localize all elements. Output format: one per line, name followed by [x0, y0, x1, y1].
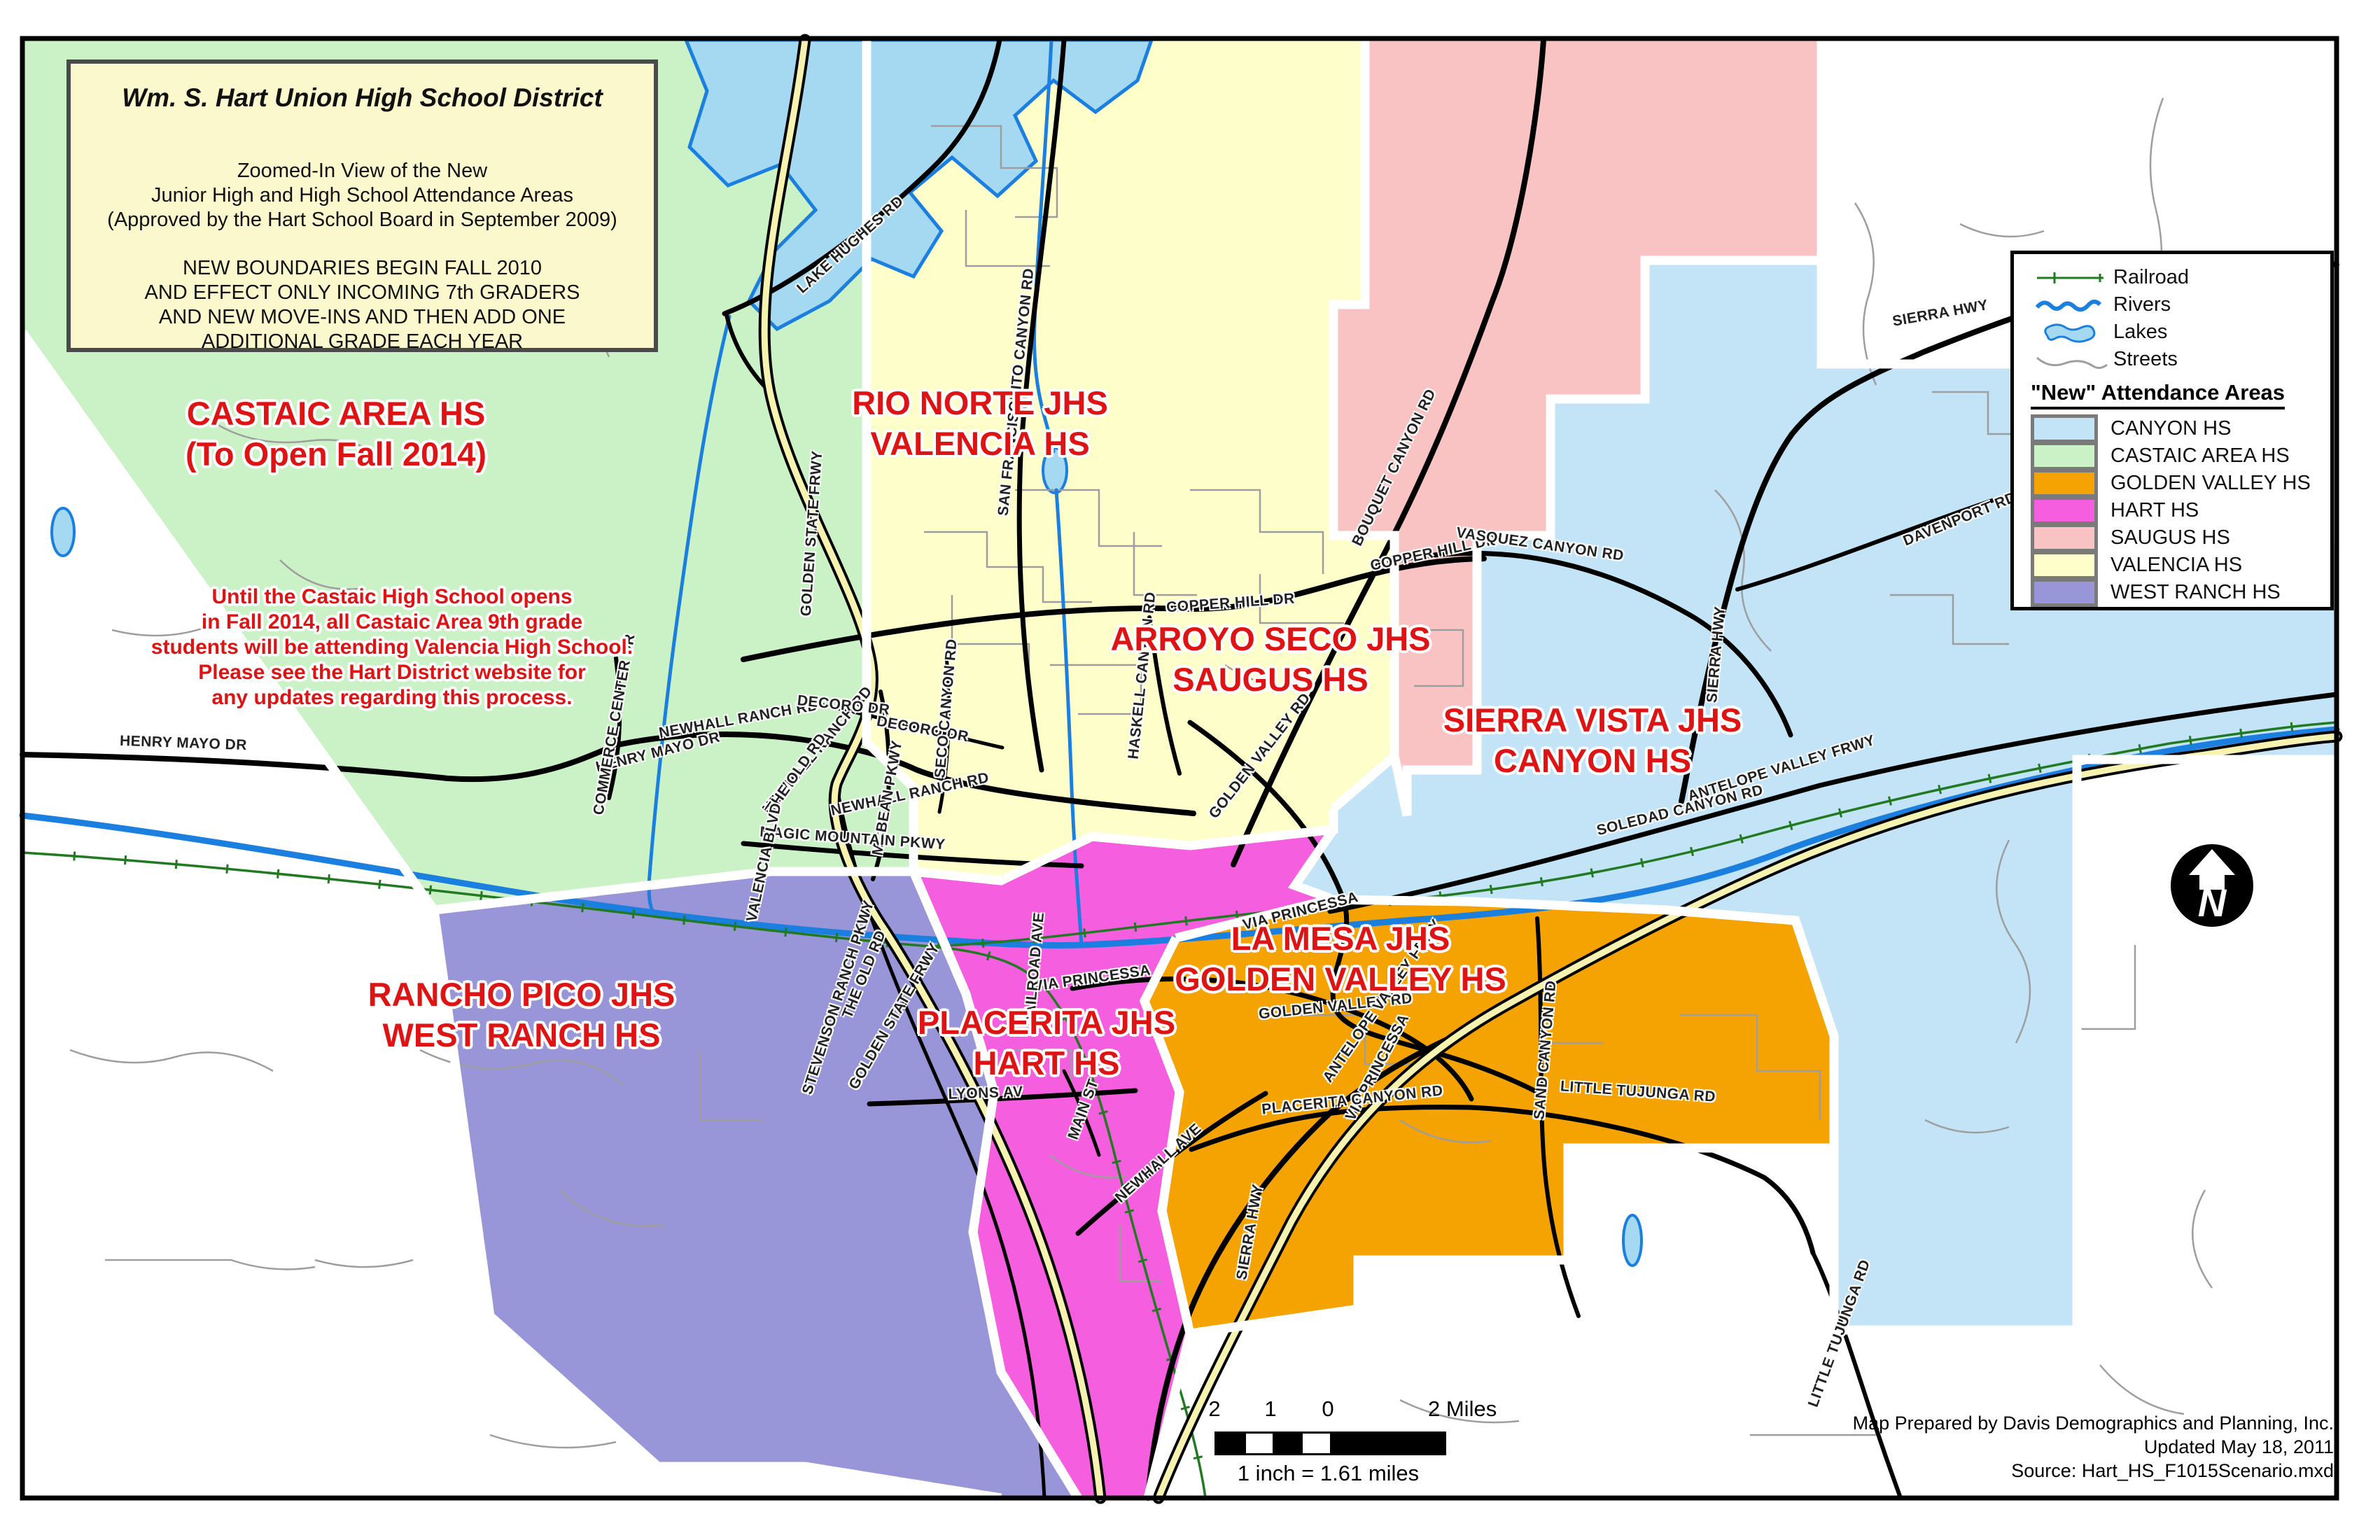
legend-area-label: SAUGUS HS — [2110, 526, 2230, 549]
railroad-symbol-icon — [2031, 267, 2113, 288]
lakes-symbol-icon — [2031, 321, 2113, 344]
credits: Map Prepared by Davis Demographics and P… — [1853, 1411, 2334, 1483]
legend-item-streets: Streets — [2031, 346, 2330, 373]
small-lake — [1623, 1215, 1641, 1266]
title-subtitle-line: Junior High and High School Attendance A… — [71, 183, 654, 208]
legend-area-valencia-hs: VALENCIA HS — [2031, 552, 2330, 578]
legend-color-swatch — [2031, 414, 2098, 443]
title-subtitle-line: (Approved by the Hart School Board in Se… — [71, 208, 654, 232]
legend-item-label: Lakes — [2113, 321, 2167, 344]
legend-area-label: CASTAIC AREA HS — [2110, 444, 2290, 468]
road-label: LYONS AV — [948, 1084, 1023, 1103]
legend-area-hart-hs: HART HS — [2031, 497, 2330, 524]
area-label-placerita: PLACERITA JHSHART HS — [918, 1002, 1175, 1084]
map-subtitle: Zoomed-In View of the NewJunior High and… — [71, 159, 654, 232]
legend-item-railroad: Railroad — [2031, 264, 2330, 291]
map-notice: NEW BOUNDARIES BEGIN FALL 2010AND EFFECT… — [71, 256, 654, 354]
north-arrow-label: N — [2198, 881, 2227, 925]
legend-color-swatch — [2031, 496, 2098, 525]
map-title: Wm. S. Hart Union High School District — [71, 83, 654, 113]
small-lake — [52, 508, 74, 556]
legend-item-label: Railroad — [2113, 266, 2189, 289]
legend-color-swatch — [2031, 442, 2098, 470]
legend-area-items: CANYON HSCASTAIC AREA HSGOLDEN VALLEY HS… — [2031, 415, 2330, 605]
legend-item-lakes: Lakes — [2031, 318, 2330, 346]
legend-area-label: CANYON HS — [2110, 417, 2231, 440]
title-box: Wm. S. Hart Union High School District Z… — [66, 59, 658, 352]
map-page: Wm. S. Hart Union High School District Z… — [0, 0, 2380, 1540]
credit-source: Source: Hart_HS_F1015Scenario.mxd — [1853, 1459, 2334, 1483]
area-label-rio-norte: RIO NORTE JHSVALENCIA HS — [852, 383, 1108, 464]
legend-item-label: Streets — [2113, 348, 2178, 371]
scale-caption: 1 inch = 1.61 miles — [1214, 1461, 1442, 1486]
scale-end-label: 2 Miles — [1428, 1396, 1497, 1422]
area-label-rancho-pico: RANCHO PICO JHSWEST RANCH HS — [368, 974, 675, 1056]
area-label-la-mesa: LA MESA JHSGOLDEN VALLEY HS — [1175, 918, 1506, 1000]
title-subtitle-line: Zoomed-In View of the New — [71, 159, 654, 183]
legend-item-label: Rivers — [2113, 293, 2171, 316]
legend-header: "New" Attendance Areas — [2031, 380, 2285, 409]
legend-area-canyon-hs: CANYON HS — [2031, 415, 2330, 442]
area-label-sierra-vista: SIERRA VISTA JHSCANYON HS — [1443, 700, 1742, 781]
legend-area-castaic-area-hs: CASTAIC AREA HS — [2031, 442, 2330, 469]
credit-prepared-by: Map Prepared by Davis Demographics and P… — [1853, 1411, 2334, 1435]
credit-updated: Updated May 18, 2011 — [1853, 1435, 2334, 1459]
streets-symbol-icon — [2031, 349, 2113, 370]
legend-color-swatch — [2031, 524, 2098, 552]
legend-area-label: VALENCIA HS — [2110, 554, 2242, 577]
legend-area-label: GOLDEN VALLEY HS — [2110, 472, 2311, 495]
legend-color-swatch — [2031, 578, 2098, 607]
rivers-symbol-icon — [2031, 295, 2113, 316]
area-label-arroyo-seco: ARROYO SECO JHSSAUGUS HS — [1110, 619, 1430, 700]
legend-area-west-ranch-hs: WEST RANCH HS — [2031, 579, 2330, 605]
title-notice-line: AND EFFECT ONLY INCOMING 7th GRADERS — [71, 281, 654, 305]
legend-area-golden-valley-hs: GOLDEN VALLEY HS — [2031, 470, 2330, 496]
title-notice-line: NEW BOUNDARIES BEGIN FALL 2010 — [71, 256, 654, 281]
area-label-castaic: CASTAIC AREA HS(To Open Fall 2014) — [185, 393, 486, 475]
legend-area-label: WEST RANCH HS — [2110, 581, 2281, 604]
scale-tick: 1 — [1264, 1396, 1276, 1422]
scale-bar: 2102 Miles 1 inch = 1.61 miles — [1204, 1396, 1505, 1487]
legend-line-items: RailroadRiversLakesStreets — [2031, 264, 2330, 373]
scale-bar-segments — [1214, 1431, 1446, 1455]
legend-item-rivers: Rivers — [2031, 291, 2330, 318]
title-notice-line: ADDITIONAL GRADE EACH YEAR — [71, 330, 654, 354]
legend-color-swatch — [2031, 469, 2098, 498]
title-notice-line: AND NEW MOVE-INS AND THEN ADD ONE — [71, 305, 654, 330]
legend-area-label: HART HS — [2110, 499, 2199, 522]
castaic-note: Until the Castaic High School opensin Fa… — [151, 584, 633, 710]
legend-color-swatch — [2031, 551, 2098, 580]
scale-tick: 2 — [1208, 1396, 1220, 1422]
legend-area-saugus-hs: SAUGUS HS — [2031, 524, 2330, 551]
scale-tick: 0 — [1322, 1396, 1333, 1422]
legend: RailroadRiversLakesStreets "New" Attenda… — [2010, 251, 2334, 610]
north-arrow: N — [2169, 842, 2255, 929]
